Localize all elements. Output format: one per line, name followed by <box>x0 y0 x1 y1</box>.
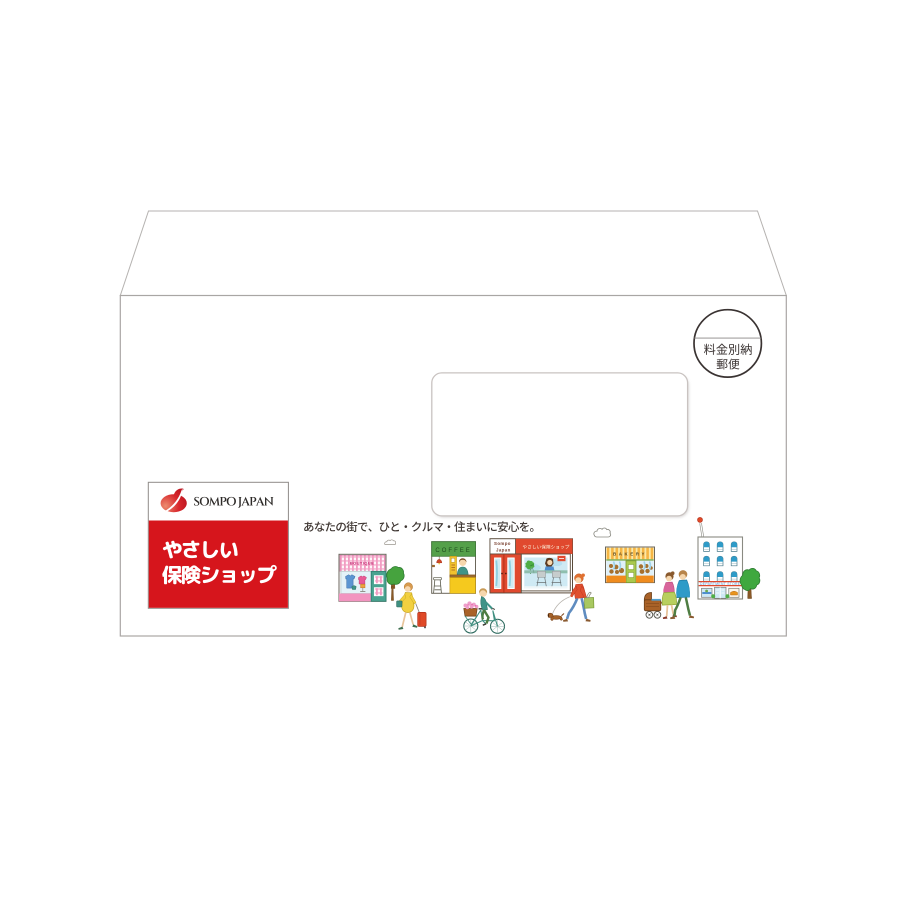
svg-text:BAKERY: BAKERY <box>613 551 647 556</box>
svg-text:COFFEE: COFFEE <box>435 548 471 554</box>
svg-text:Sompo: Sompo <box>494 541 511 546</box>
svg-text:Japan: Japan <box>496 548 511 553</box>
svg-text:DEPARTMENT STORE: DEPARTMENT STORE <box>700 582 741 586</box>
svg-text:BOUTIQUE: BOUTIQUE <box>350 560 374 565</box>
